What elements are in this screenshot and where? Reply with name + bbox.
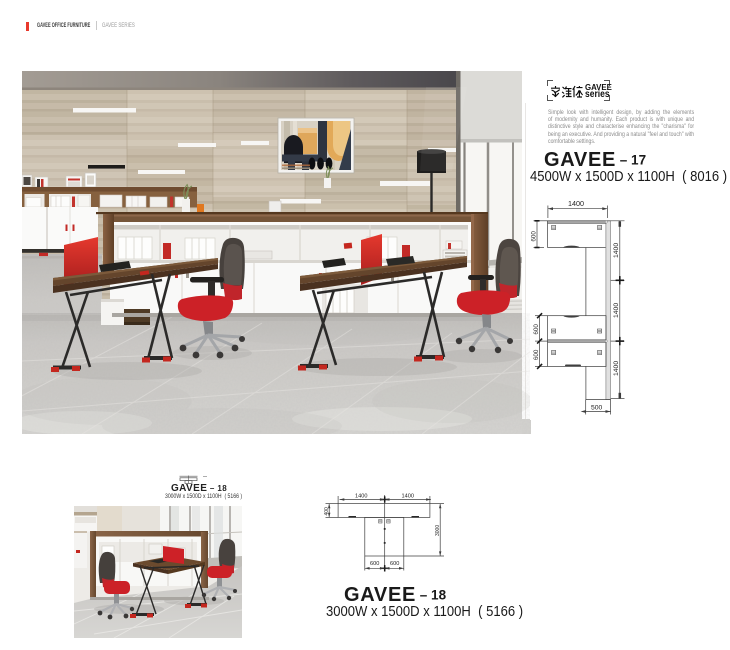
svg-text:500: 500 <box>591 405 603 412</box>
svg-text:1400: 1400 <box>568 199 584 208</box>
svg-text:1400: 1400 <box>613 361 620 376</box>
svg-text:600: 600 <box>370 561 379 567</box>
svg-text:600: 600 <box>533 349 540 360</box>
svg-text:600: 600 <box>531 231 538 242</box>
svg-text:600: 600 <box>533 324 540 335</box>
svg-text:3000: 3000 <box>435 525 441 536</box>
svg-text:600: 600 <box>390 561 399 567</box>
svg-text:1400: 1400 <box>355 493 367 499</box>
svg-text:1400: 1400 <box>613 303 620 318</box>
svg-text:1400: 1400 <box>402 493 414 499</box>
svg-text:400: 400 <box>324 507 330 516</box>
svg-text:1400: 1400 <box>613 243 620 258</box>
